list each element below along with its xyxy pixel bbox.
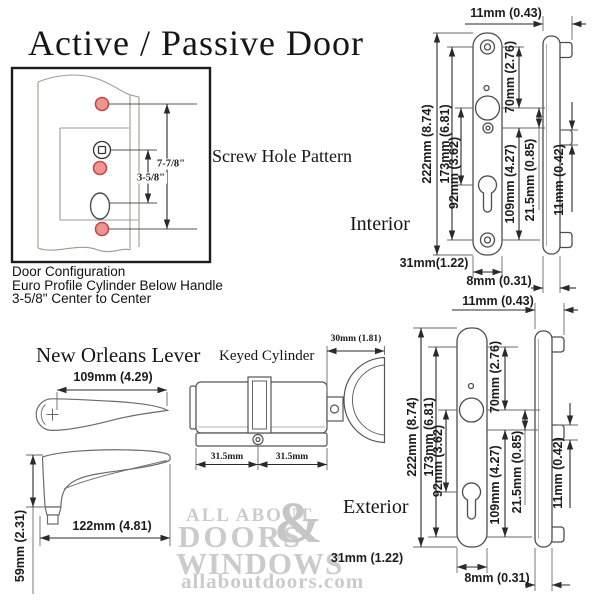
dim-exterior-tab-height: 11mm (0.42) xyxy=(551,437,565,509)
euro-cylinder-cutout xyxy=(91,193,110,219)
dim-interior-top-to-spindle: 70mm (2.76) xyxy=(503,41,517,113)
dim-interior-tab-height: 11mm (0.42) xyxy=(552,144,566,216)
diagram-page: ALL ABOUT DOORS & WINDOWS allaboutdoors.… xyxy=(0,0,600,600)
dim-lever-top-length: 109mm (4.29) xyxy=(73,370,152,384)
dim-interior-plate-width: 31mm(1.22) xyxy=(400,256,469,270)
caption-line-2: Euro Profile Cylinder Below Handle xyxy=(12,279,223,293)
lever-top-view xyxy=(36,399,167,431)
dim-exterior-plate-width: 31mm (1.22) xyxy=(331,551,403,565)
dim-interior-overall: 222mm (8.74) xyxy=(420,104,434,183)
caption-line-3: 3-5/8" Center to Center xyxy=(12,292,223,306)
config-dim-3-58: 3-5/8" xyxy=(135,173,167,184)
exterior-plate-drawing xyxy=(457,328,487,547)
dim-thumbturn-depth: 30mm (1.81) xyxy=(331,334,382,344)
screw-head-icon xyxy=(94,142,111,159)
lever-title: New Orleans Lever xyxy=(36,343,200,368)
dim-exterior-plate-thickness: 8mm (0.31) xyxy=(464,571,529,585)
cylinder-cam xyxy=(248,377,271,433)
screw-hole-pattern-label: Screw Hole Pattern xyxy=(212,146,352,167)
dim-interior-spindle-to-screw: 21.5mm (0.85) xyxy=(523,139,537,222)
lever-side-view xyxy=(43,450,171,524)
dim-lever-height: 59mm (2.31) xyxy=(13,510,27,582)
dim-exterior-spindle-to-cylinder: 92mm (3.62) xyxy=(431,425,445,497)
lever-spindle-tip xyxy=(48,515,59,524)
dim-exterior-side-depth: 11mm (0.43) xyxy=(462,294,534,308)
dim-interior-spindle-to-cylinder: 92mm (3.62) xyxy=(447,137,461,209)
dim-exterior-top-to-spindle: 70mm (2.76) xyxy=(488,341,502,413)
thumbturn-knob xyxy=(344,358,385,443)
interior-label: Interior xyxy=(350,213,410,236)
cylinder-title: Keyed Cylinder xyxy=(219,348,314,365)
keyed-cylinder-drawing xyxy=(190,358,385,447)
interior-plate-drawing xyxy=(473,33,502,255)
dim-exterior-lower-span: 109mm (4.27) xyxy=(488,445,502,524)
page-title: Active / Passive Door xyxy=(28,22,364,64)
dim-cylinder-right-half: 31.5mm xyxy=(276,452,308,462)
dim-exterior-spindle-to-screw: 21.5mm (0.85) xyxy=(510,431,524,514)
dim-interior-side-depth: 11mm (0.43) xyxy=(470,6,542,20)
dim-exterior-overall: 222mm (8.74) xyxy=(405,397,419,476)
dim-interior-plate-thickness: 8mm (0.31) xyxy=(466,274,531,288)
config-dim-7-78: 7-7/8" xyxy=(155,159,187,170)
dim-cylinder-left-half: 31.5mm xyxy=(211,452,243,462)
caption-line-1: Door Configuration xyxy=(12,265,223,279)
exterior-label: Exterior xyxy=(343,496,409,519)
dim-interior-lower-span: 109mm (4.27) xyxy=(503,144,517,223)
dim-lever-side-length: 122mm (4.81) xyxy=(72,519,151,533)
door-config-caption: Door Configuration Euro Profile Cylinder… xyxy=(12,265,223,306)
